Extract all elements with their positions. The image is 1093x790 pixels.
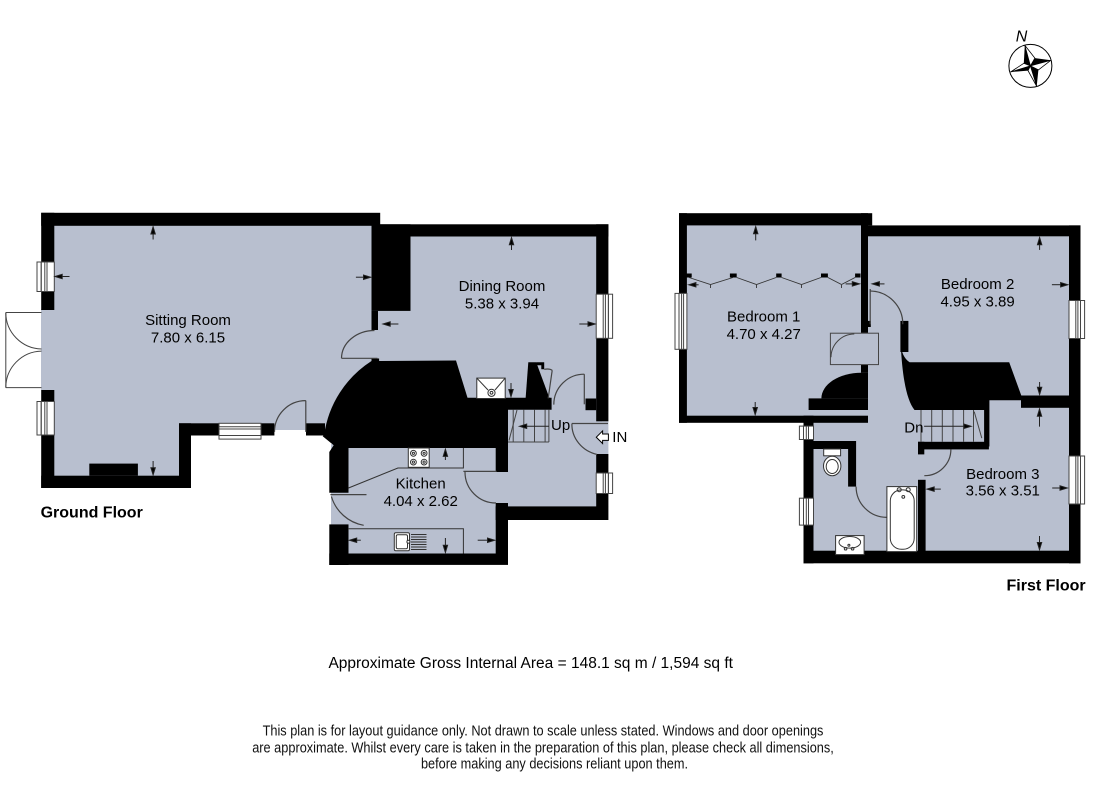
svg-text:Bedroom 2: Bedroom 2: [941, 276, 1014, 293]
svg-text:4.04 x 2.62: 4.04 x 2.62: [384, 493, 458, 510]
svg-text:Kitchen: Kitchen: [396, 476, 446, 493]
svg-text:Bedroom 1: Bedroom 1: [727, 309, 800, 326]
svg-text:3.56 x 3.51: 3.56 x 3.51: [966, 483, 1040, 500]
svg-text:IN: IN: [612, 429, 627, 446]
svg-text:are approximate. Whilst every: are approximate. Whilst every care is ta…: [252, 740, 834, 756]
svg-text:4.70 x 4.27: 4.70 x 4.27: [727, 326, 801, 343]
svg-text:Dining Room: Dining Room: [459, 278, 546, 295]
svg-text:First Floor: First Floor: [1007, 578, 1086, 595]
svg-text:4.95 x 3.89: 4.95 x 3.89: [940, 294, 1014, 311]
svg-text:This plan is for layout guidan: This plan is for layout guidance only. N…: [263, 723, 824, 739]
svg-text:before making any decisions re: before making any decisions reliant upon…: [421, 756, 688, 772]
svg-text:7.80 x 6.15: 7.80 x 6.15: [151, 330, 225, 347]
svg-text:Ground Floor: Ground Floor: [41, 505, 143, 522]
svg-text:N: N: [1016, 29, 1028, 46]
svg-text:5.38 x 3.94: 5.38 x 3.94: [465, 296, 539, 313]
svg-text:Up: Up: [551, 417, 570, 434]
svg-text:Bedroom 3: Bedroom 3: [966, 466, 1039, 483]
svg-text:Dn: Dn: [904, 419, 923, 436]
svg-text:Sitting Room: Sitting Room: [145, 312, 231, 329]
svg-text:Approximate Gross Internal Are: Approximate Gross Internal Area = 148.1 …: [328, 655, 733, 672]
